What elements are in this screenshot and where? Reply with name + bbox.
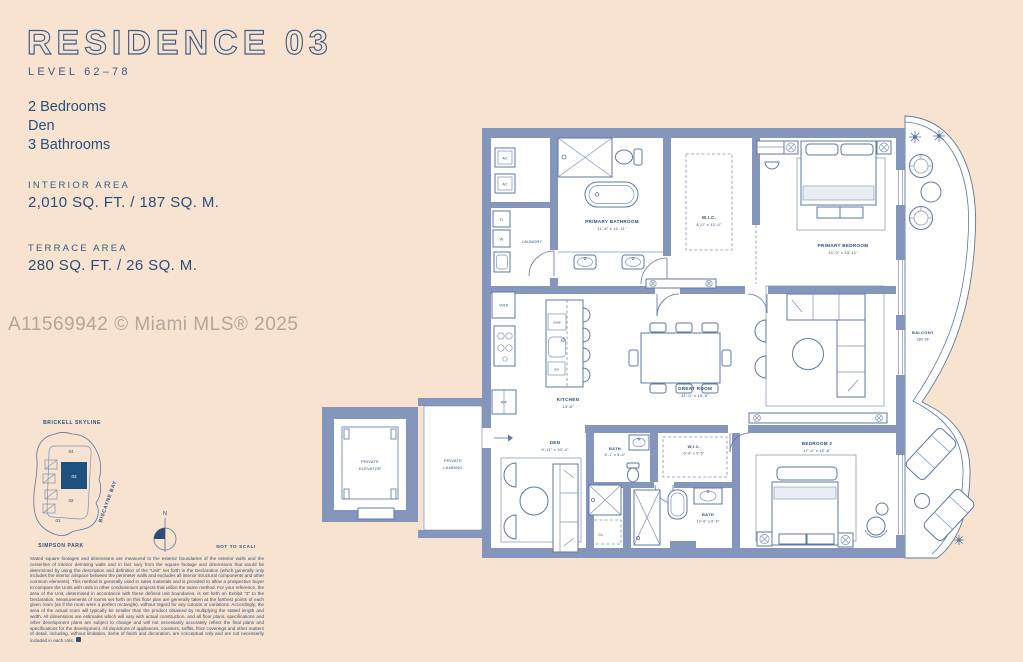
svg-text:14'-0" x 13'-11": 14'-0" x 13'-11" (828, 250, 858, 255)
svg-text:ELEVATOR: ELEVATOR (359, 466, 381, 471)
dryer-label: D (500, 217, 503, 222)
interior-area-label: INTERIOR AREA (28, 180, 130, 191)
balcony-label: BALCONY (912, 330, 934, 335)
shower-icon (634, 490, 660, 545)
svg-text:8'-0" x 12'-0": 8'-0" x 12'-0" (696, 222, 722, 227)
round-lounge-chair-icon (910, 155, 933, 178)
keyplan-unit-01: 01 (55, 518, 61, 523)
primary-bedroom-label: PRIMARY BEDROOM (818, 243, 869, 248)
keyplan-unit-04: 04 (68, 449, 74, 454)
bath-1-label: BATH (609, 446, 621, 451)
laundry-label: LAUNDRY (522, 239, 543, 244)
round-table-icon (520, 487, 548, 515)
toilet-icon (616, 149, 643, 165)
legal-disclaimer-text: Stated square footages and dimensions ar… (30, 556, 264, 643)
feature-bathrooms: 3 Bathrooms (28, 136, 110, 155)
media-console-icon (749, 413, 887, 423)
dishwasher-label: DW (554, 368, 559, 372)
shower-icon (558, 138, 612, 177)
cooktop-icon (494, 326, 515, 366)
svg-text:280 SF: 280 SF (917, 338, 930, 342)
svg-text:41'-0" x 15'-6": 41'-0" x 15'-6" (681, 393, 709, 398)
page-title: RESIDENCE 03 (27, 24, 333, 63)
feature-den: Den (28, 117, 110, 136)
wine-label: WINE (553, 321, 561, 325)
bedroom-2-label: BEDROOM 2 (802, 441, 833, 446)
den-label: DEN (550, 440, 561, 445)
bathtub-icon (585, 182, 638, 207)
private-elevator: PRIVATE ELEVATOR (322, 407, 418, 522)
sideboard-icon (646, 279, 716, 288)
north-arrow-icon: N (154, 511, 176, 552)
ac-label-2: A/C (502, 183, 508, 187)
toilet-icon (627, 463, 639, 482)
bed-icon (772, 467, 838, 545)
key-plan: BRICKELL SKYLINE 04 03 02 01 BISCAYNE BA… (25, 412, 255, 555)
svg-text:17'-4" x 12'-6": 17'-4" x 12'-6" (803, 448, 831, 453)
svg-text:9'-11" x 10'-4": 9'-11" x 10'-4" (541, 447, 569, 452)
washer-label: W (500, 237, 504, 242)
keyplan-building-outline: 04 03 02 01 (34, 433, 101, 536)
bathtub-icon (668, 490, 687, 519)
ac-label-1: A/C (502, 157, 508, 161)
primary-bathroom-label: PRIMARY BATHROOM (585, 219, 639, 224)
bath-2-label: BATH (702, 512, 714, 517)
keyplan-skyline-label: BRICKELL SKYLINE (43, 420, 101, 426)
closet-label: CL (598, 532, 604, 537)
kitchen-label: KITCHEN (557, 397, 580, 402)
not-to-scale-note: NOT TO SCALE (216, 544, 255, 549)
keyplan-unit-03: 03 (71, 474, 77, 479)
oven-label: OVEN (499, 304, 509, 308)
svg-text:LANDING: LANDING (443, 465, 462, 470)
sofa-icon (553, 464, 578, 552)
svg-text:13'-6": 13'-6" (562, 404, 574, 409)
feature-list: 2 Bedrooms Den 3 Bathrooms (28, 98, 110, 155)
feature-bedrooms: 2 Bedrooms (28, 98, 110, 117)
kitchen-island-icon: WINE DW (546, 300, 590, 387)
primary-wic-label: W.I.C. (702, 215, 716, 220)
svg-text:N: N (163, 511, 167, 517)
floor-plan: PRIVATE ELEVATOR PRIVATE LANDING A/C A/C… (320, 110, 980, 565)
dining-table-icon (629, 323, 731, 393)
mls-watermark: A11569942 © Miami MLS® 2025 (8, 314, 298, 336)
svg-text:10'-6" x 6'-6": 10'-6" x 6'-6" (697, 520, 720, 524)
keyplan-core (43, 460, 57, 513)
shower-icon (589, 485, 621, 515)
private-elevator-label: PRIVATE (361, 459, 379, 464)
private-landing: PRIVATE LANDING (418, 398, 491, 538)
plant-icon (954, 535, 964, 545)
wic-2-label: W.I.C. (688, 444, 701, 449)
round-lounge-chair-icon (910, 207, 933, 230)
private-landing-label: PRIVATE (444, 458, 462, 463)
side-table-icon (915, 494, 930, 509)
equal-housing-icon (76, 637, 81, 642)
fridge-label: R/F (501, 401, 508, 405)
terrace-area-value: 280 SQ. FT. / 26 SQ. M. (28, 257, 197, 274)
svg-text:11'-8" x 12'-11": 11'-8" x 12'-11" (597, 226, 627, 231)
interior-area-value: 2,010 SQ. FT. / 187 SQ. M. (28, 194, 219, 211)
terrace-area-label: TERRACE AREA (28, 243, 128, 254)
great-room-label: GREAT ROOM (678, 386, 712, 391)
svg-text:6'-1" x 5'-4": 6'-1" x 5'-4" (605, 453, 626, 457)
coffee-table-icon (793, 339, 824, 370)
legal-disclaimer: Stated square footages and dimensions ar… (30, 556, 264, 644)
balcony-outline (905, 116, 976, 558)
round-table-icon (921, 182, 941, 202)
keyplan-unit-02: 02 (68, 498, 74, 503)
svg-text:6'-4" x 5'-5": 6'-4" x 5'-5" (684, 452, 705, 456)
keyplan-park-label: SIMPSON PARK (38, 543, 83, 549)
level-subtitle: LEVEL 62–78 (28, 66, 131, 78)
